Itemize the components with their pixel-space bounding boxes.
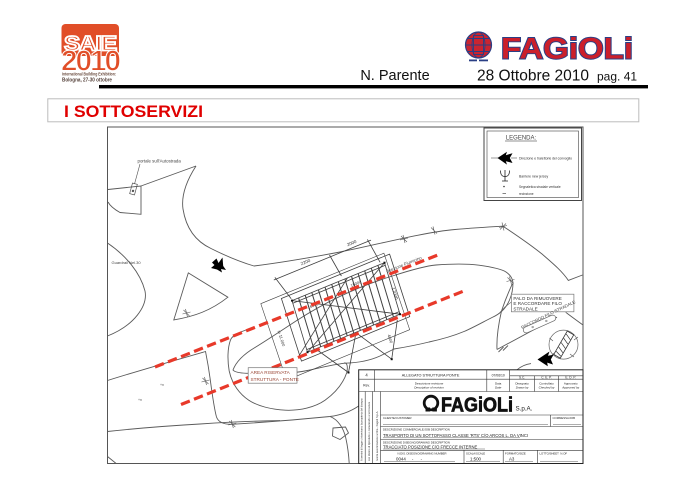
svg-text:International Building Exhibit: International Building Exhibition: <box>62 72 116 77</box>
svg-text:E. D. P.: E. D. P. <box>565 376 576 380</box>
svg-text:C. E. P.: C. E. P. <box>541 376 552 380</box>
svg-text:portale sull'Autostrada: portale sull'Autostrada <box>138 159 182 164</box>
svg-text:Direzione e traiettorie del co: Direzione e traiettorie del convoglio <box>519 157 572 161</box>
svg-text:LEGENDA:: LEGENDA: <box>506 136 537 142</box>
svg-text:07/06/10: 07/06/10 <box>492 374 505 378</box>
svg-text:Guardrail Nel.30: Guardrail Nel.30 <box>112 260 142 265</box>
svg-text:con divieto di riprodurlo o co: con divieto di riprodurlo o comunicarlo … <box>367 401 371 461</box>
svg-text:SCALA/SCALE: SCALA/SCALE <box>466 451 485 455</box>
svg-text:S.p.A.: S.p.A. <box>516 406 533 413</box>
svg-text:FAGiOLi: FAGiOLi <box>501 33 633 66</box>
svg-text:N.DIS. DISEGNO/DRAWING NUMBER: N.DIS. DISEGNO/DRAWING NUMBER <box>398 451 447 455</box>
svg-text:Drawn by: Drawn by <box>516 386 529 390</box>
svg-text:STRADALE: STRADALE <box>513 307 537 312</box>
svg-text:AREA RISERVATA: AREA RISERVATA <box>251 370 291 375</box>
svg-text:1:500: 1:500 <box>470 456 482 461</box>
svg-text:TRASPORTO DI UN SOTTOPASSO CLA: TRASPORTO DI UN SOTTOPASSO CLASSE 'RTS' … <box>383 433 528 438</box>
svg-text:COMMESSA/JOB: COMMESSA/JOB <box>553 416 576 420</box>
svg-text:CLIENTE/CUSTOMER: CLIENTE/CUSTOMER <box>383 416 412 420</box>
svg-text:nostra autorizzazione scritta: nostra autorizzazione scritta - Fagioli … <box>375 411 379 461</box>
svg-text:Checked by: Checked by <box>539 386 555 390</box>
svg-text:S.C.: S.C. <box>519 376 525 380</box>
svg-text:ALLEGATO STRUTTURA PONTE: ALLEGATO STRUTTURA PONTE <box>402 374 460 378</box>
svg-text:A3: A3 <box>509 456 515 461</box>
svg-text:PALO DA RIMUOVERE: PALO DA RIMUOVERE <box>513 296 561 301</box>
svg-text:FORMATO/SIZE: FORMATO/SIZE <box>505 451 526 455</box>
svg-text:TRACCIATO POSIZIONE C/O FRECCE: TRACCIATO POSIZIONE C/O FRECCE INTERNE <box>383 444 478 449</box>
svg-text:STRUTTURA - PONTE: STRUTTURA - PONTE <box>251 377 299 382</box>
svg-text:A termini di legge ci riservia: A termini di legge ci riserviamo la prop… <box>360 398 364 461</box>
svg-text:pag. 41: pag. 41 <box>597 70 637 84</box>
svg-text:FAGiOLi: FAGiOLi <box>441 395 513 417</box>
svg-text:Segnaletica stradale verticale: Segnaletica stradale verticale <box>519 185 561 189</box>
svg-text:recinzione: recinzione <box>519 192 534 196</box>
svg-text:Bologna, 27-30 ottobre: Bologna, 27-30 ottobre <box>62 78 113 84</box>
svg-text:Barriere new jersey: Barriere new jersey <box>519 175 549 179</box>
svg-text:I SOTTOSERVIZI: I SOTTOSERVIZI <box>64 102 203 121</box>
svg-text:Description of revision: Description of revision <box>414 386 444 390</box>
svg-text:N. Parente: N. Parente <box>360 68 429 84</box>
svg-text:28 Ottobre 2010: 28 Ottobre 2010 <box>477 68 589 85</box>
svg-text:Date: Date <box>495 386 502 390</box>
svg-text:LOTTO/SHEET N.OF: LOTTO/SHEET N.OF <box>540 451 568 455</box>
svg-text:0044 - -: 0044 - - <box>396 456 423 461</box>
svg-text:+n: +n <box>138 398 142 402</box>
svg-text:E RACCORDARE FILO: E RACCORDARE FILO <box>513 301 562 306</box>
svg-text:Approved by: Approved by <box>561 386 579 390</box>
svg-text:Rev.: Rev. <box>363 384 370 388</box>
svg-text:+n: +n <box>160 383 164 387</box>
svg-text:DESCRIZIONE COMMERCIALE/JOB DE: DESCRIZIONE COMMERCIALE/JOB DESCRIPTION <box>383 427 450 431</box>
